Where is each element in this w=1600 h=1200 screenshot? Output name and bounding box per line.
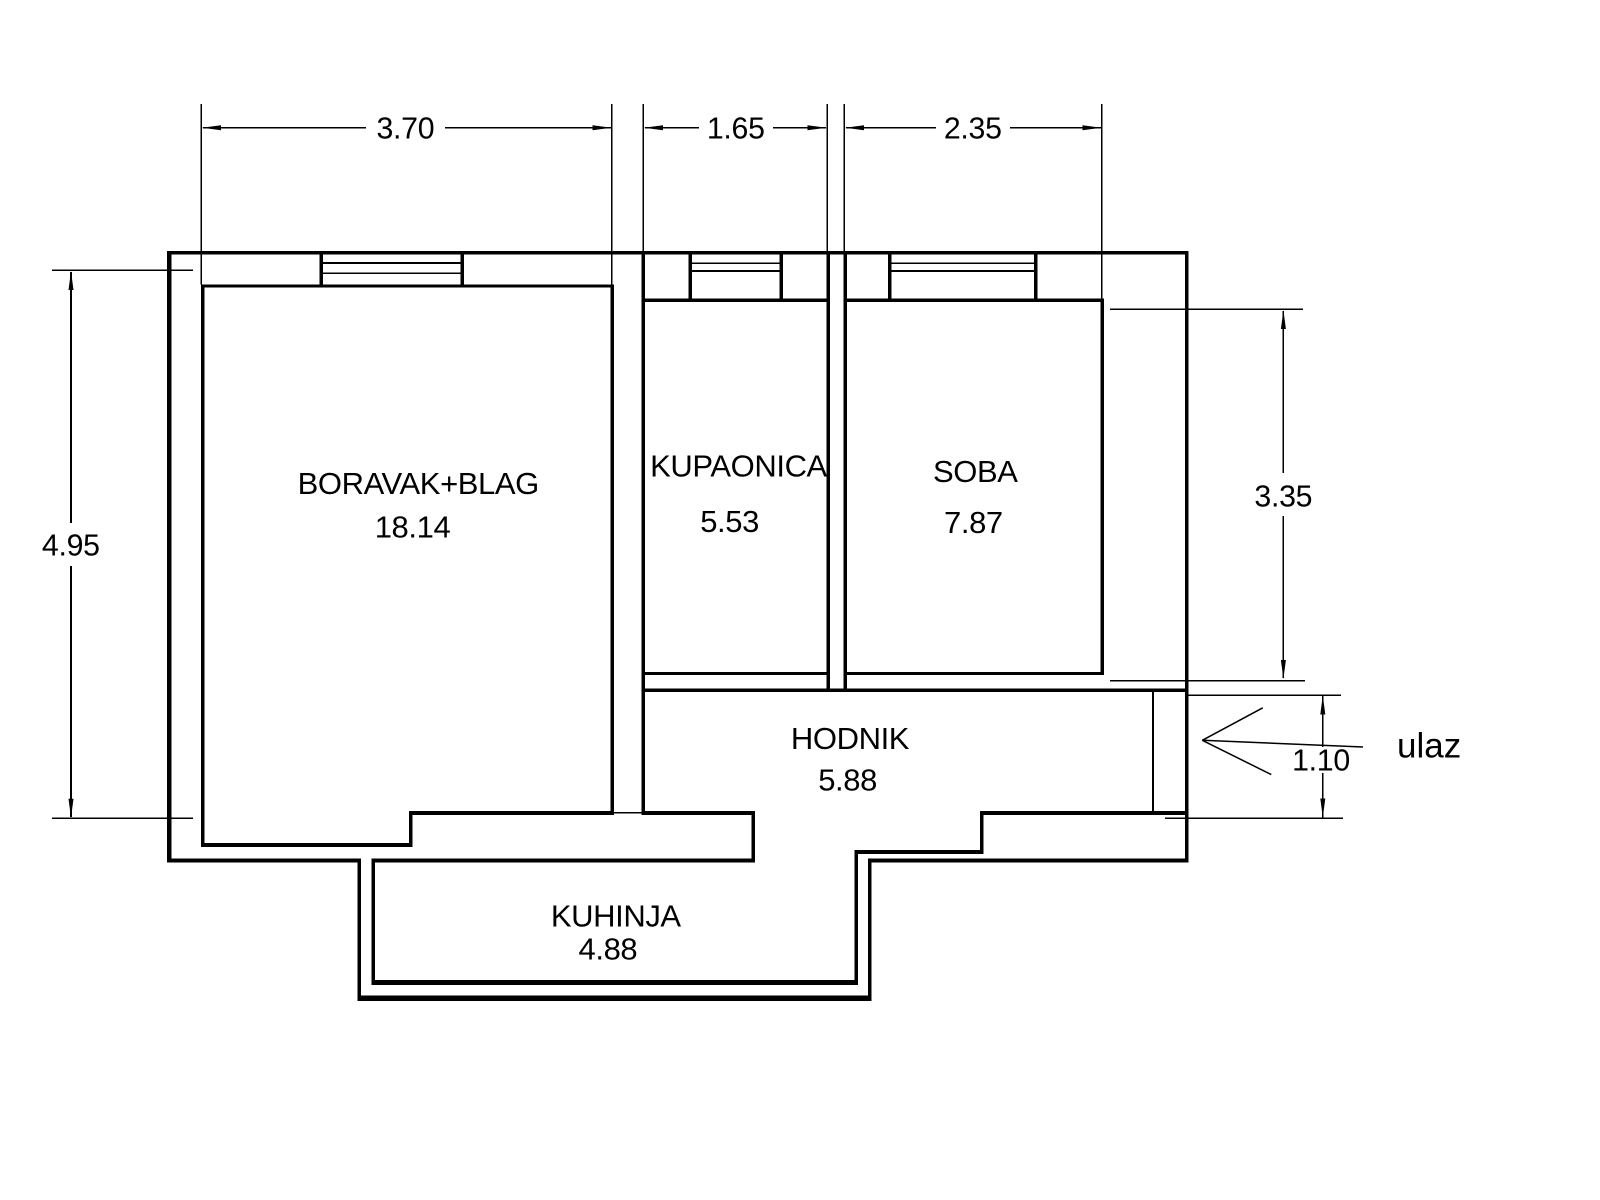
svg-text:1.65: 1.65 bbox=[707, 113, 765, 146]
svg-text:HODNIK: HODNIK bbox=[791, 721, 910, 756]
svg-text:5.53: 5.53 bbox=[700, 504, 759, 539]
svg-text:4.88: 4.88 bbox=[579, 932, 638, 967]
svg-text:7.87: 7.87 bbox=[944, 505, 1003, 540]
svg-text:2.35: 2.35 bbox=[944, 113, 1002, 146]
svg-text:ulaz: ulaz bbox=[1397, 727, 1461, 766]
svg-text:5.88: 5.88 bbox=[818, 763, 877, 798]
svg-text:18.14: 18.14 bbox=[375, 510, 451, 545]
svg-text:3.35: 3.35 bbox=[1254, 481, 1312, 514]
svg-text:KUHINJA: KUHINJA bbox=[551, 899, 682, 934]
svg-text:1.10: 1.10 bbox=[1292, 745, 1350, 778]
svg-text:BORAVAK+BLAG: BORAVAK+BLAG bbox=[298, 466, 539, 501]
svg-text:KUPAONICA: KUPAONICA bbox=[650, 448, 827, 483]
svg-text:3.70: 3.70 bbox=[377, 112, 435, 145]
svg-text:4.95: 4.95 bbox=[42, 530, 100, 563]
svg-text:SOBA: SOBA bbox=[933, 454, 1018, 489]
